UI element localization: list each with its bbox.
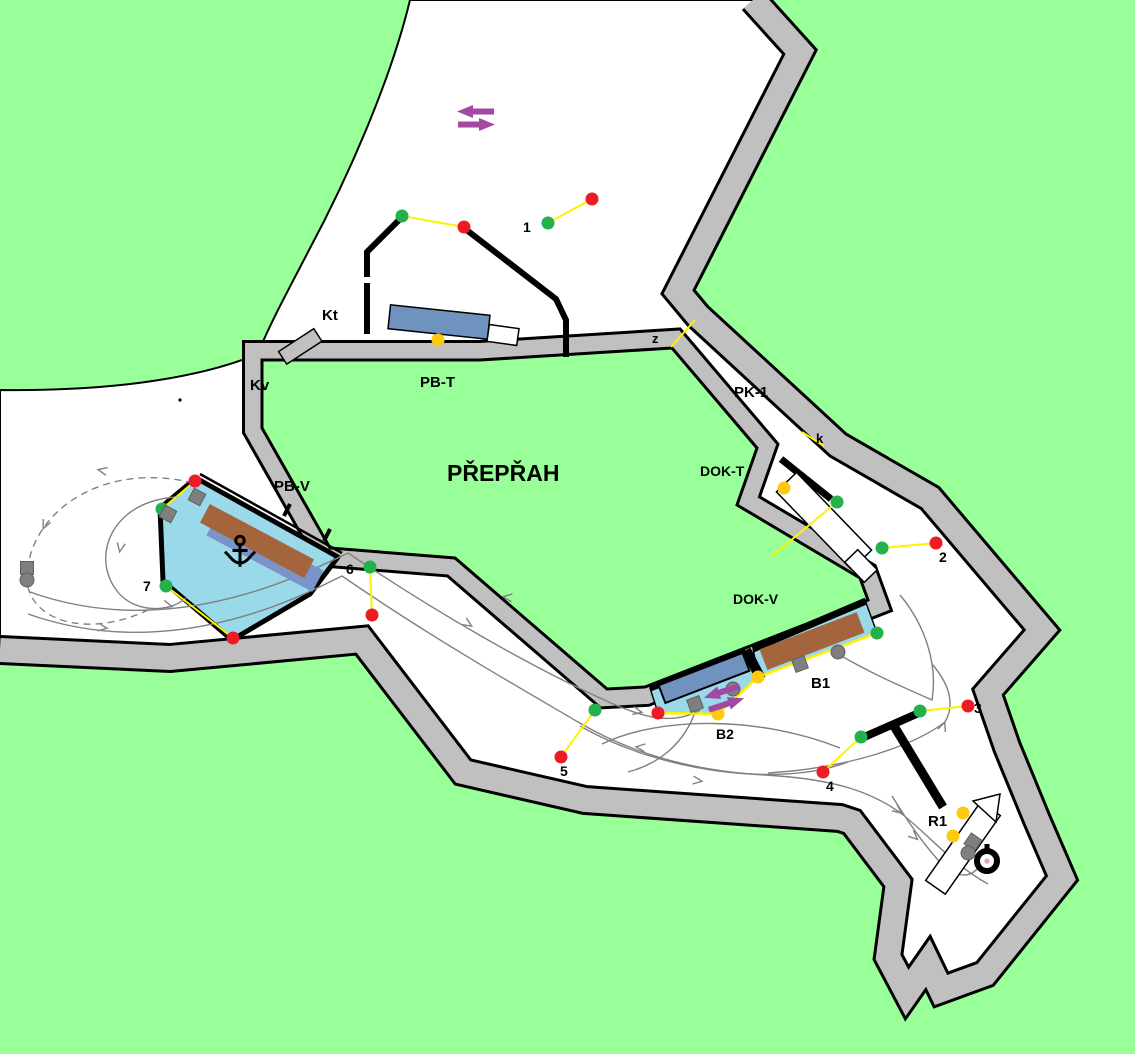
map-label-b1: B1 xyxy=(811,675,830,692)
map-label-b2: B2 xyxy=(716,726,734,742)
map-label-k: k xyxy=(816,431,824,446)
nav-point-red-dot xyxy=(458,221,471,234)
nav-point-red-dot xyxy=(366,609,379,622)
nav-point-gold-dot xyxy=(957,807,970,820)
nav-point-gold-dot xyxy=(778,482,791,495)
nav-point-red-dot xyxy=(962,700,975,713)
nav-point-red-dot xyxy=(189,475,202,488)
nav-point-gold-dot xyxy=(752,671,765,684)
nav-point-green-dot xyxy=(871,627,884,640)
map-label-pk-1: PK-1 xyxy=(734,384,768,401)
nav-point-gold-dot xyxy=(432,334,445,347)
map-title: PŘEPŘAH xyxy=(447,459,559,486)
nav-point-red-dot xyxy=(227,632,240,645)
nav-point-green-dot xyxy=(542,217,555,230)
map-label-kt: Kt xyxy=(322,307,338,324)
map-label-n4: 4 xyxy=(826,778,834,794)
nav-point-green-dot xyxy=(589,704,602,717)
nav-point-green-dot xyxy=(876,542,889,555)
map-label-n3: 3 xyxy=(974,700,982,716)
nav-point-red-dot xyxy=(652,707,665,720)
nav-point-red-dot xyxy=(817,766,830,779)
map-label-n6: 6 xyxy=(346,561,354,577)
reference-dot xyxy=(178,398,181,401)
nav-point-green-dot xyxy=(160,580,173,593)
map-label-n5: 5 xyxy=(560,763,568,779)
harbor-map: KtKvPB-TPB-VPK-1DOK-TDOK-VB1B2R11234567z… xyxy=(0,0,1135,1054)
nav-point-green-dot xyxy=(914,705,927,718)
map-label-n2: 2 xyxy=(939,549,947,565)
mooring-marker-circle xyxy=(20,573,34,587)
map-label-n7: 7 xyxy=(143,578,151,594)
nav-point-green-dot xyxy=(855,731,868,744)
pbt-pusher xyxy=(487,324,519,345)
gate-line xyxy=(658,713,718,714)
map-label-pb-v: PB-V xyxy=(274,478,310,495)
mooring-marker-circle xyxy=(961,846,975,860)
nav-point-red-dot xyxy=(586,193,599,206)
mooring-marker-circle xyxy=(831,645,845,659)
nav-point-red-dot xyxy=(930,537,943,550)
nav-point-green-dot xyxy=(831,496,844,509)
map-label-n1: 1 xyxy=(523,219,531,235)
nav-point-green-dot xyxy=(396,210,409,223)
map-label-r1: R1 xyxy=(928,813,947,830)
nav-point-green-dot xyxy=(364,561,377,574)
map-label-dok-v: DOK-V xyxy=(733,591,779,607)
map-label-z: z xyxy=(652,331,659,346)
map-label-pb-t: PB-T xyxy=(420,374,455,391)
map-label-kv: Kv xyxy=(250,377,270,394)
nav-point-red-dot xyxy=(555,751,568,764)
map-label-dok-t: DOK-T xyxy=(700,463,745,479)
nav-point-gold-dot xyxy=(947,830,960,843)
